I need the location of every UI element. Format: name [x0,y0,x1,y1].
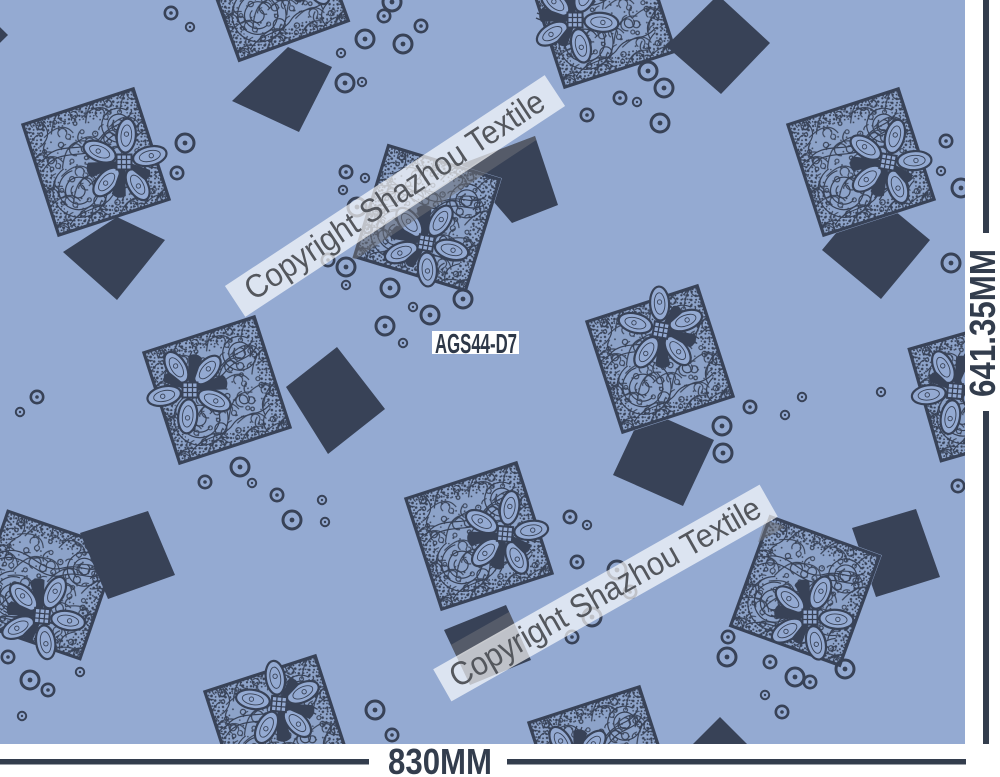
svg-text:830MM: 830MM [388,741,492,777]
svg-text:AGS44-D7: AGS44-D7 [435,328,517,359]
svg-text:641.35MM: 641.35MM [962,249,1000,397]
